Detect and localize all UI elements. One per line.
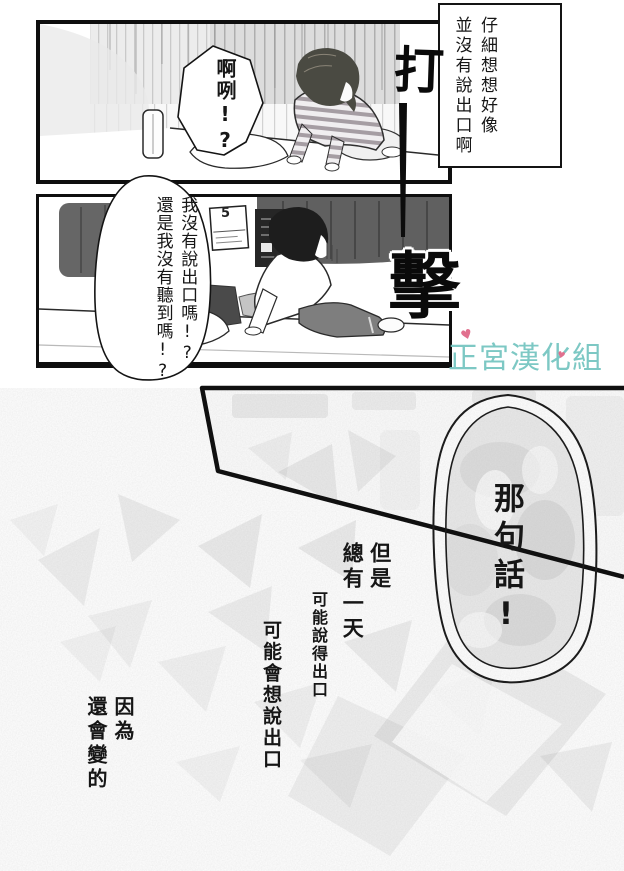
speech-bubble-1-text: 啊咧!? xyxy=(211,58,240,154)
panel-3 xyxy=(202,388,624,577)
speech-bubble-2-text: 我沒有說出口嗎!? 還是我沒有聽到嗎!? xyxy=(150,196,199,382)
caption-col-2: 並沒有說出口啊 xyxy=(448,16,474,155)
narration-2: 可能說得出口 xyxy=(306,591,330,699)
narration-1: 但是 總有一天 xyxy=(338,542,393,642)
caption-box: 仔細想想好像 並沒有說出口啊 xyxy=(438,3,562,168)
narration-4: 因為 還會變的 xyxy=(82,696,136,792)
narration-1-col-1: 但是 xyxy=(365,542,392,642)
curtain-left xyxy=(59,203,163,277)
bubble-2-col-1: 我沒有說出口嗎!? xyxy=(175,196,200,382)
narration-1-col-2: 總有一天 xyxy=(338,542,365,642)
calendar-day: 5 xyxy=(221,206,230,221)
narration-3: 可能會想說出口 xyxy=(258,620,285,771)
sfx-geki-text: 擊 xyxy=(382,248,454,320)
sfx-da-text: 打 xyxy=(378,43,452,95)
caption-text: 仔細想想好像 並沒有說出口啊 xyxy=(448,16,499,155)
bubble-3-text: 那句話! xyxy=(484,482,529,639)
caption-col-1: 仔細想想好像 xyxy=(474,16,500,155)
manga-page: 仔細想想好像 並沒有說出口啊 啊咧!? 我沒有說出口嗎!? 還是我沒有聽到嗎!?… xyxy=(0,0,624,871)
bubble-2-col-2: 還是我沒有聽到嗎!? xyxy=(150,196,175,382)
panel-3-border xyxy=(202,388,624,577)
narration-4-col-1: 因為 xyxy=(109,696,136,792)
narration-4-col-2: 還會變的 xyxy=(82,696,109,792)
